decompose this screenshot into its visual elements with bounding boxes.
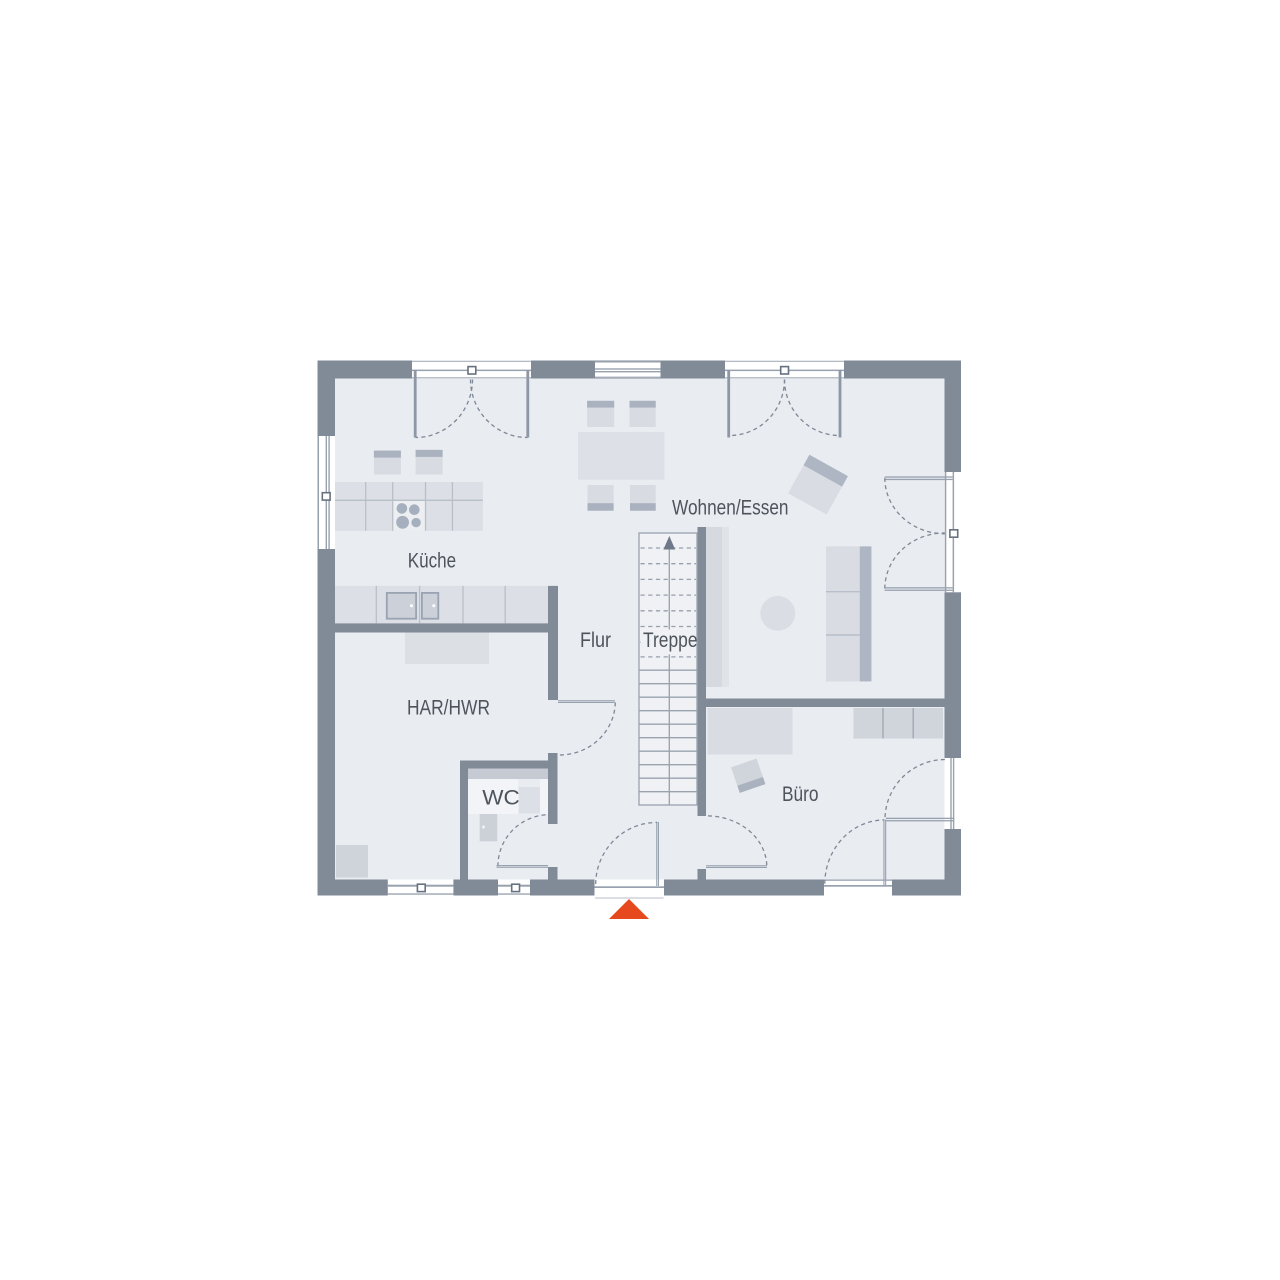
svg-text:Küche: Küche — [408, 550, 456, 573]
svg-text:WC: WC — [482, 786, 520, 809]
svg-text:Flur: Flur — [580, 629, 611, 652]
svg-text:HAR/HWR: HAR/HWR — [407, 696, 490, 719]
svg-text:Treppe: Treppe — [643, 629, 698, 652]
svg-text:Büro: Büro — [782, 783, 819, 806]
svg-text:Wohnen/Essen: Wohnen/Essen — [672, 497, 789, 520]
